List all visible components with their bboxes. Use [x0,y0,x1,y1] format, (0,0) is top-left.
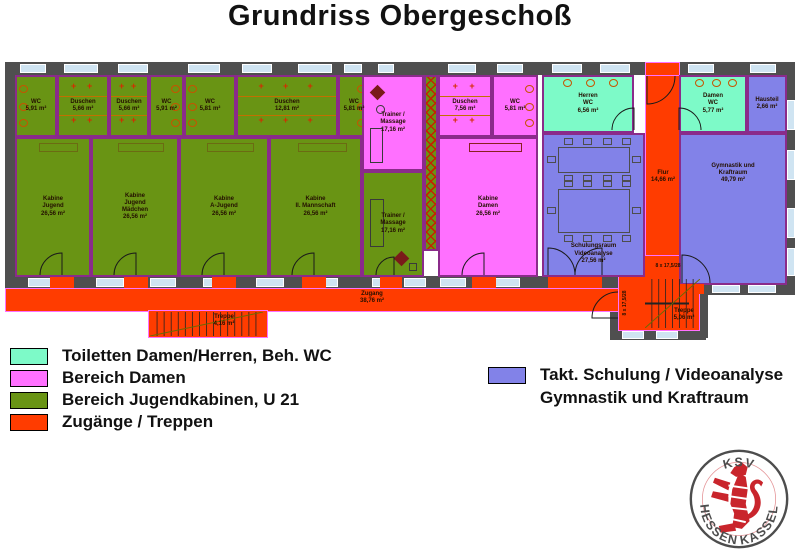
shower-head-icon: + [308,116,313,125]
chair [622,180,631,187]
window [688,64,714,73]
room-herren-wc: Herren WC 6,56 m² [542,75,634,133]
shower-head-icon: + [119,82,124,91]
shower-head-icon: + [119,116,124,125]
toilet-icon [188,119,197,127]
room-label: Duschen 12,81 m² [274,99,299,113]
door-threshold [302,277,326,288]
room-wc-3: WC 5,81 m² [184,75,236,137]
legend-label: Toiletten Damen/Herren, Beh. WC [62,346,332,366]
shower-head-icon: + [259,82,264,91]
room-label: WC 5,91 m² [156,99,177,113]
chair [632,156,641,163]
room-label: Trainer / Massage 17,16 m² [380,112,405,134]
legend-swatch [10,370,48,387]
chair [547,207,556,214]
room-label: Kabine II. Mannschaft 26,56 m² [295,196,335,218]
room-wc-2: WC 5,91 m² [149,75,184,137]
room-label: Kabine A-Jugend 26,56 m² [210,196,238,218]
toilet-icon [609,79,618,87]
legend-swatch [488,367,526,384]
floor-plan: WC 5,91 m²Duschen 5,66 m²++++Duschen 5,6… [0,0,800,556]
room-label: Kabine Damen 26,56 m² [476,196,500,218]
shower-head-icon: + [87,82,92,91]
legend-item: Takt. Schulung / Videoanalyse [488,365,783,385]
zugang-label: Zugang 38,76 m² [350,291,394,305]
toilet-icon [695,79,704,87]
toilet-icon [188,103,197,111]
window [712,285,740,293]
chair [564,138,573,145]
room-label: WC 5,81 m² [344,99,365,113]
room-kabine-jugend: Kabine Jugend 26,56 m² [15,137,91,277]
toilet-icon [563,79,572,87]
legend-swatch [10,392,48,409]
window [344,64,362,73]
window [440,278,466,287]
room-trainer-massage-damen: Trainer / Massage 17,16 m² [362,75,424,171]
window [448,64,476,73]
room-duschen-2: Duschen 5,66 m²++++ [109,75,149,137]
shower-divider [59,96,107,97]
door-threshold [212,277,236,288]
window [118,64,148,73]
shower-divider [111,96,147,97]
room-kabine-a-jugend: Kabine A-Jugend 26,56 m² [179,137,269,277]
window [622,331,644,339]
room-label: WC 5,81 m² [505,99,526,113]
toilet-icon [728,79,737,87]
room-label: Schulungsraum Videoanalyse 27,56 m² [571,243,616,275]
shower-head-icon: + [131,82,136,91]
chair [632,207,641,214]
room-label: Kabine Jugend Mädchen 26,56 m² [122,193,148,222]
room-wc-1: WC 5,91 m² [15,75,57,137]
room-label: Duschen 5,66 m² [70,99,95,113]
shower-head-icon: + [71,82,76,91]
room-duschen-3: Duschen 12,81 m²++++++ [236,75,338,137]
toilet-icon [712,79,721,87]
window [494,278,520,287]
room-schrankzeile [424,75,438,251]
room-label: WC 5,81 m² [200,99,221,113]
shower-divider [440,96,490,97]
legend-swatch [10,348,48,365]
room-trainer-massage-jugend: Trainer / Massage 17,16 m² [362,171,424,277]
chair [583,235,592,242]
legend-label: Bereich Jugendkabinen, U 21 [62,390,299,410]
window [748,285,776,293]
furniture-rect [469,143,522,152]
room-duschen-1: Duschen 5,66 m²++++ [57,75,109,137]
chair [564,235,573,242]
shower-head-icon: + [469,116,474,125]
legend-item: Bereich Jugendkabinen, U 21 [10,390,299,410]
table [558,147,630,173]
room-label: Duschen 5,66 m² [116,99,141,113]
window [96,278,124,287]
room-gymnastik-kraftraum: Gymnastik und Kraftraum 49,79 m² [679,133,787,285]
window [600,64,630,73]
room-wc-damen-bereich: WC 5,81 m² [492,75,538,137]
legend-item: Toiletten Damen/Herren, Beh. WC [10,346,332,366]
window [150,278,176,287]
window [552,64,582,73]
chair [603,138,612,145]
room-hausteil: Hausteil 2,66 m² [747,75,787,133]
chair [622,235,631,242]
legend-item: Gymnastik und Kraftraum [540,388,749,408]
room-label: Gymnastik und Kraftraum 49,79 m² [711,135,754,185]
toilet-icon [525,119,534,127]
window [242,64,272,73]
shower-head-icon: + [131,116,136,125]
shower-divider [59,115,107,116]
door-threshold [548,277,602,288]
room-label: Hausteil 2,66 m² [755,97,778,111]
treppe-links-label: Treppe 4,16 m² [206,314,242,328]
chair [603,180,612,187]
chair [583,138,592,145]
chair [583,180,592,187]
stair-note-2: 8 x 17,5/28 [622,280,628,326]
window [787,100,795,130]
furniture-rect [207,143,254,152]
shower-divider [238,96,336,97]
window [787,208,795,238]
window [298,64,332,73]
stair-note-1: 8 x 17,5/28 [645,263,691,269]
room-label: Kabine Jugend 26,56 m² [41,196,65,218]
window [497,64,523,73]
furniture-rect [298,143,347,152]
door-threshold [680,284,704,294]
shower-divider [440,115,490,116]
toilet-icon [525,103,534,111]
toilet-icon [19,85,28,93]
legend-item: Bereich Damen [10,368,186,388]
toilet-icon [586,79,595,87]
toilet-icon [188,85,197,93]
treppe-rechts-label: Treppe 5,06 m² [666,308,702,322]
room-kabine-jugend-maedchen: Kabine Jugend Mädchen 26,56 m² [91,137,179,277]
shower-head-icon: + [87,116,92,125]
room-damen-wc: Damen WC 5,77 m² [679,75,747,133]
shower-head-icon: + [283,116,288,125]
legend-label: Takt. Schulung / Videoanalyse [540,365,783,385]
shower-head-icon: + [71,116,76,125]
shower-head-icon: + [283,82,288,91]
room-kabine-damen: Kabine Damen 26,56 m² [438,137,538,277]
room-schulungsraum-videoanalyse: Schulungsraum Videoanalyse 27,56 m² [542,133,645,277]
chair [547,156,556,163]
shower-head-icon: + [259,116,264,125]
room-label: Trainer / Massage 17,16 m² [380,213,405,235]
toilet-icon [171,119,180,127]
shower-head-icon: + [453,116,458,125]
window [787,248,795,276]
room-kabine-2-mannschaft: Kabine II. Mannschaft 26,56 m² [269,137,362,277]
shower-head-icon: + [453,82,458,91]
window [656,331,678,339]
table [558,189,630,233]
room-label: Duschen 7,56 m² [452,99,477,113]
toilet-icon [19,119,28,127]
shower-head-icon: + [308,82,313,91]
window [256,278,284,287]
door-threshold [50,277,74,288]
legend-item: Zugänge / Treppen [10,412,213,432]
chair [622,138,631,145]
toilet-icon [171,85,180,93]
desk-icon [370,85,386,101]
room-duschen-damen: Duschen 7,56 m²++++ [438,75,492,137]
furniture-rect [409,263,417,271]
door-threshold [380,277,402,288]
room-label: WC 5,91 m² [26,99,47,113]
door-threshold [472,277,496,288]
legend-label: Zugänge / Treppen [62,412,213,432]
window [750,64,776,73]
door-threshold [646,63,679,75]
furniture-rect [118,143,164,152]
room-label: Herren WC 6,56 m² [578,93,599,115]
window [20,64,46,73]
chair [564,180,573,187]
window [64,64,98,73]
furniture-rect [39,143,79,152]
toilet-icon [525,85,534,93]
window [378,64,394,73]
shower-head-icon: + [469,82,474,91]
wall-segment [5,62,15,290]
window [404,278,426,287]
legend-label: Gymnastik und Kraftraum [540,388,749,408]
window [787,150,795,180]
window [188,64,220,73]
room-label: Damen WC 5,77 m² [703,93,724,115]
chair [603,235,612,242]
corridor-zugang [5,288,622,312]
shower-divider [111,115,147,116]
flur-label: Flur 14,66 m² [645,170,681,184]
door-threshold [124,277,148,288]
desk-icon [394,250,410,266]
legend-swatch [10,414,48,431]
legend-label: Bereich Damen [62,368,186,388]
